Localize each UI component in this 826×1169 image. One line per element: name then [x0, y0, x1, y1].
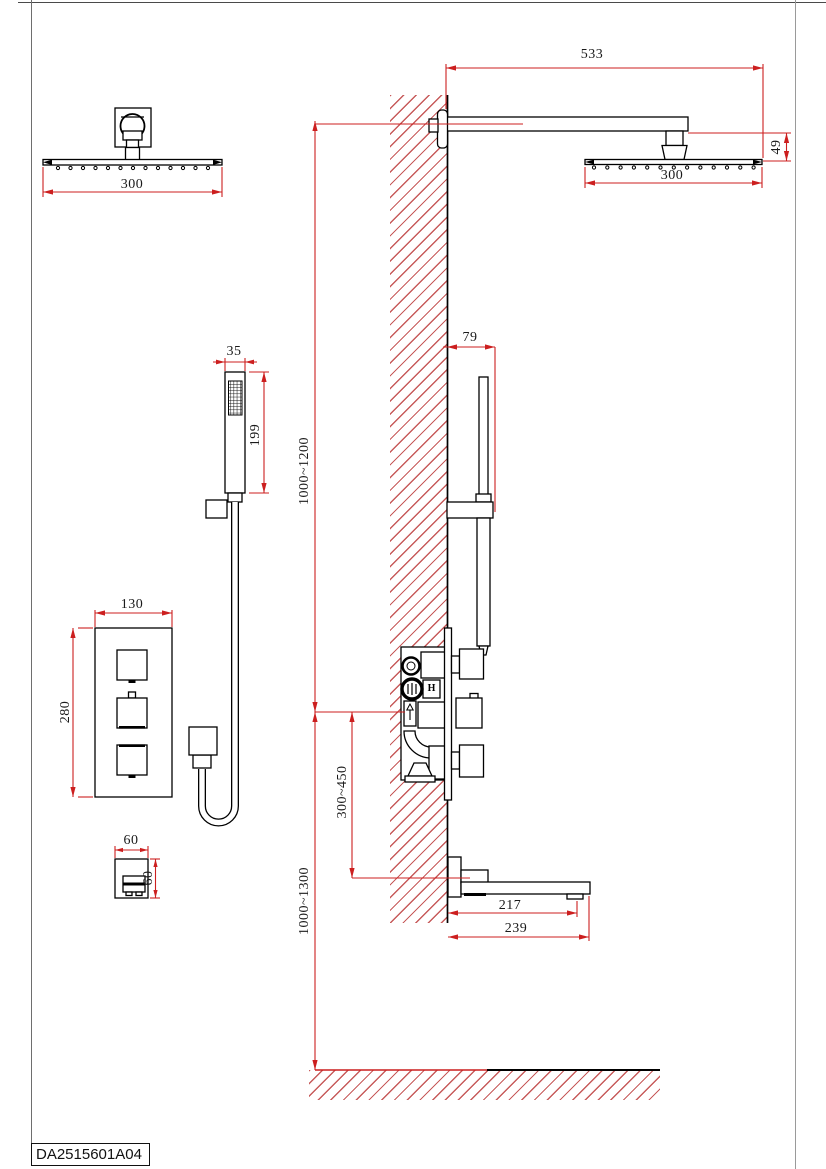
dim-spout-total-reach: 239 [505, 922, 528, 936]
dim-bar-wall-offset: 79 [463, 331, 478, 345]
dimension-lines [43, 64, 791, 1070]
dim-outlet-width: 60 [124, 834, 139, 848]
drawing-code-label: DA2515601A04 [36, 1146, 142, 1163]
title-block: DA2515601A04 [31, 1143, 150, 1166]
drawing-sheet: 300 533 49 300 35 199 79 130 280 60 60 2… [0, 0, 826, 1169]
dim-head-drop: 49 [770, 140, 784, 155]
dim-overhead-side-width: 300 [661, 169, 684, 183]
dim-mixer-height: 280 [59, 701, 73, 724]
dim-mixer-mount-height: 1000~1300 [298, 867, 312, 935]
dim-mixer-width: 130 [121, 598, 144, 612]
dim-overhead-front-width: 300 [121, 178, 144, 192]
dim-handshower-length: 199 [249, 424, 263, 447]
dim-outlet-height: 60 [142, 871, 156, 886]
dim-handshower-width: 35 [227, 345, 242, 359]
dim-spout-outlet-reach: 217 [499, 899, 522, 913]
drawing-linework [0, 0, 826, 1169]
hot-water-marker: H [428, 684, 436, 694]
black-linework [43, 95, 762, 1070]
dim-mixer-to-spout-drop: 300~450 [336, 765, 350, 818]
dim-arm-projection: 533 [581, 48, 604, 62]
dimension-arrows [43, 65, 789, 1070]
dim-handshower-mount-height: 1000~1200 [298, 437, 312, 505]
